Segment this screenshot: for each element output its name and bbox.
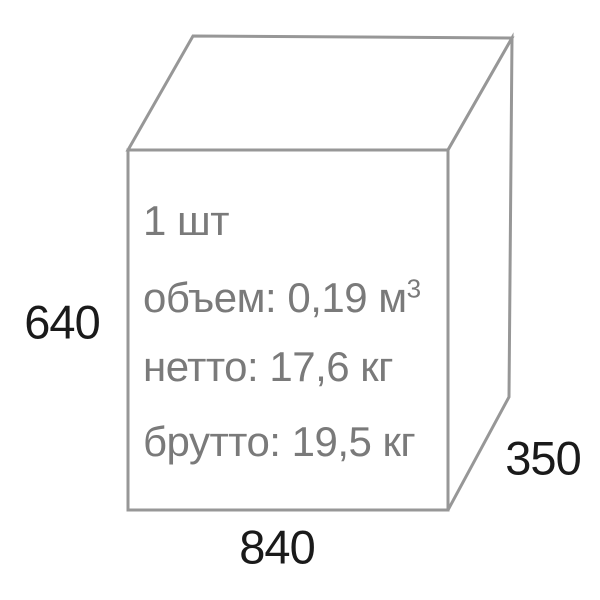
gross-weight-label: брутто: 19,5 кг [143,421,415,463]
width-dimension-label: 840 [239,524,314,571]
volume-text: объем: 0,19 м [143,274,407,321]
height-dimension-label: 640 [24,299,99,346]
net-weight-label: нетто: 17,6 кг [143,346,393,388]
volume-label: объем: 0,19 м3 [143,277,421,319]
depth-dimension-label: 350 [505,435,580,482]
box-top-face [128,36,512,150]
quantity-label: 1 шт [143,200,229,242]
package-dimensions-diagram: 1 шт объем: 0,19 м3 нетто: 17,6 кг брутт… [0,0,600,600]
volume-superscript: 3 [407,274,421,304]
